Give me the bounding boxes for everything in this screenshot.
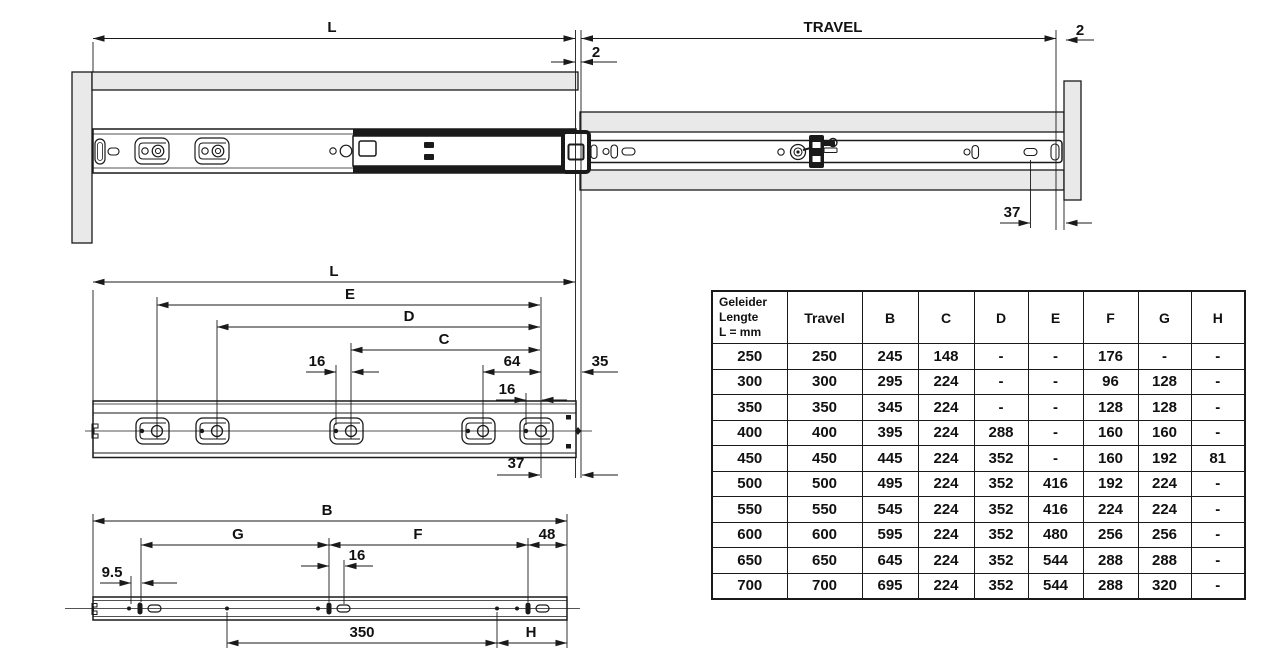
dim-label-c: C xyxy=(439,331,450,348)
table-row: 650650645224352544288288- xyxy=(712,548,1245,574)
table-cell: 400 xyxy=(712,420,787,446)
table-cell: 352 xyxy=(974,446,1028,472)
table-cell: 550 xyxy=(712,497,787,523)
table-cell: 160 xyxy=(1083,420,1138,446)
table-row: 250250245148--176-- xyxy=(712,344,1245,370)
table-cell: 450 xyxy=(712,446,787,472)
table-cell: 224 xyxy=(918,497,974,523)
table-cell: 695 xyxy=(862,573,918,599)
table-cell: 550 xyxy=(787,497,862,523)
technical-drawing-page: L TRAVEL 2 2 37 xyxy=(0,0,1280,650)
rail-connector-block xyxy=(563,132,589,172)
table-row: 700700695224352544288320- xyxy=(712,573,1245,599)
drawer-side-lower xyxy=(580,170,1064,190)
cabinet-top-panel xyxy=(92,72,578,90)
table-cell: 256 xyxy=(1083,522,1138,548)
dim-label-hole-pitch-front: 16 xyxy=(499,381,516,398)
col-header-h: H xyxy=(1191,291,1245,344)
table-cell: 96 xyxy=(1083,369,1138,395)
table-cell: 288 xyxy=(1083,573,1138,599)
dim-label-350: 350 xyxy=(349,624,374,641)
table-cell: 192 xyxy=(1083,471,1138,497)
table-cell: - xyxy=(1191,420,1245,446)
table-cell: 300 xyxy=(787,369,862,395)
table-cell: 352 xyxy=(974,548,1028,574)
drawer-side-upper xyxy=(580,112,1064,132)
table-cell: 416 xyxy=(1028,497,1083,523)
table-cell: - xyxy=(1191,369,1245,395)
table-cell: 224 xyxy=(1138,471,1191,497)
drawer-front-panel xyxy=(1064,81,1081,200)
col-header-g: G xyxy=(1138,291,1191,344)
table-cell: 176 xyxy=(1083,344,1138,370)
table-cell: 300 xyxy=(712,369,787,395)
table-cell: 480 xyxy=(1028,522,1083,548)
table-row: 600600595224352480256256- xyxy=(712,522,1245,548)
table-cell: 128 xyxy=(1138,369,1191,395)
table-cell: 700 xyxy=(712,573,787,599)
col-header-b: B xyxy=(862,291,918,344)
table-cell: - xyxy=(1138,344,1191,370)
table-cell: 224 xyxy=(1138,497,1191,523)
inner-drawer-rail xyxy=(578,135,1062,168)
table-cell: - xyxy=(1191,344,1245,370)
header-line: L = mm xyxy=(719,325,787,340)
table-cell: 352 xyxy=(974,497,1028,523)
table-cell: 160 xyxy=(1138,420,1191,446)
table-cell: - xyxy=(1028,446,1083,472)
drawer-member-view: B G F 48 16 9.5 350 H xyxy=(65,502,580,648)
table-cell: - xyxy=(1191,395,1245,421)
table-cell: - xyxy=(1028,420,1083,446)
table-cell: 600 xyxy=(787,522,862,548)
col-header-d: D xyxy=(974,291,1028,344)
table-cell: 352 xyxy=(974,522,1028,548)
table-cell: 288 xyxy=(974,420,1028,446)
table-cell: 295 xyxy=(862,369,918,395)
table-cell: 288 xyxy=(1138,548,1191,574)
dim-label-front-gap: 2 xyxy=(1076,22,1084,39)
col-header-f: F xyxy=(1083,291,1138,344)
table-cell: 650 xyxy=(712,548,787,574)
table-cell: 81 xyxy=(1191,446,1245,472)
table-cell: 645 xyxy=(862,548,918,574)
header-line: Geleider xyxy=(719,295,787,310)
table-cell: 224 xyxy=(918,369,974,395)
dim-label-h: H xyxy=(526,624,537,641)
dim-label-hole-pitch: 16 xyxy=(349,547,366,564)
header-line: Lengte xyxy=(719,310,787,325)
table-row: 450450445224352-16019281 xyxy=(712,446,1245,472)
table-cell: - xyxy=(1028,344,1083,370)
dim-label-length-top: L xyxy=(327,19,336,36)
dim-label-f: F xyxy=(413,526,422,543)
table-cell: 416 xyxy=(1028,471,1083,497)
table-cell: - xyxy=(1191,471,1245,497)
table-cell: 224 xyxy=(918,522,974,548)
table-cell: 224 xyxy=(918,395,974,421)
dim-label-9-5: 9.5 xyxy=(102,564,123,581)
table-cell: 345 xyxy=(862,395,918,421)
table-cell: 544 xyxy=(1028,548,1083,574)
table-cell: 224 xyxy=(918,548,974,574)
dim-label-e: E xyxy=(345,286,355,303)
table-cell: 224 xyxy=(918,573,974,599)
table-cell: 128 xyxy=(1138,395,1191,421)
table-cell: - xyxy=(1191,522,1245,548)
table-cell: 600 xyxy=(712,522,787,548)
table-cell: 400 xyxy=(787,420,862,446)
table-cell: 544 xyxy=(1028,573,1083,599)
spec-table: Geleider Lengte L = mm Travel B C D E F … xyxy=(711,290,1246,600)
drawer-member-dimensions: B G F 48 16 9.5 350 H xyxy=(93,502,567,648)
dim-label-b: B xyxy=(322,502,333,519)
table-cell: 160 xyxy=(1083,446,1138,472)
table-row: 550550545224352416224224- xyxy=(712,497,1245,523)
table-cell: - xyxy=(974,395,1028,421)
table-cell: 224 xyxy=(918,446,974,472)
table-cell: - xyxy=(1191,548,1245,574)
table-cell: 445 xyxy=(862,446,918,472)
table-cell: 700 xyxy=(787,573,862,599)
table-cell: - xyxy=(1028,369,1083,395)
table-cell: 250 xyxy=(712,344,787,370)
table-cell: 288 xyxy=(1083,548,1138,574)
col-header-travel: Travel xyxy=(787,291,862,344)
table-cell: 245 xyxy=(862,344,918,370)
table-cell: 224 xyxy=(918,420,974,446)
table-cell: - xyxy=(1028,395,1083,421)
table-cell: 250 xyxy=(787,344,862,370)
dim-label-d: D xyxy=(404,308,415,325)
table-cell: 224 xyxy=(1083,497,1138,523)
table-cell: - xyxy=(974,344,1028,370)
dim-label-front-hole-offset: 37 xyxy=(1004,204,1021,221)
table-cell: 500 xyxy=(787,471,862,497)
table-cell: 350 xyxy=(787,395,862,421)
table-cell: 192 xyxy=(1138,446,1191,472)
table-cell: 352 xyxy=(974,573,1028,599)
table-cell: - xyxy=(1191,497,1245,523)
dim-label-35: 35 xyxy=(592,353,609,370)
table-cell: 128 xyxy=(1083,395,1138,421)
table-cell: - xyxy=(1191,573,1245,599)
table-header-row: Geleider Lengte L = mm Travel B C D E F … xyxy=(712,291,1245,344)
col-header-geleider-lengte: Geleider Lengte L = mm xyxy=(712,291,787,344)
col-header-e: E xyxy=(1028,291,1083,344)
table-cell: 650 xyxy=(787,548,862,574)
dim-label-hole-pitch-mid: 16 xyxy=(309,353,326,370)
table-row: 350350345224--128128- xyxy=(712,395,1245,421)
dim-label-37-mid: 37 xyxy=(508,455,525,472)
table-cell: 500 xyxy=(712,471,787,497)
dim-label-length-mid: L xyxy=(329,263,338,280)
intermediate-rail xyxy=(353,129,589,173)
dim-label-64: 64 xyxy=(504,353,521,370)
table-row: 400400395224288-160160- xyxy=(712,420,1245,446)
table-cell: 148 xyxy=(918,344,974,370)
cabinet-side-panel xyxy=(72,72,92,243)
table-cell: 320 xyxy=(1138,573,1191,599)
table-cell: 450 xyxy=(787,446,862,472)
dim-label-rear-gap: 2 xyxy=(592,44,600,61)
table-cell: 545 xyxy=(862,497,918,523)
spec-table-body: 250250245148--176--300300295224--96128-3… xyxy=(712,344,1245,600)
table-cell: 495 xyxy=(862,471,918,497)
table-cell: - xyxy=(974,369,1028,395)
dim-label-travel: TRAVEL xyxy=(804,19,863,36)
table-cell: 395 xyxy=(862,420,918,446)
table-cell: 256 xyxy=(1138,522,1191,548)
col-header-c: C xyxy=(918,291,974,344)
table-cell: 350 xyxy=(712,395,787,421)
dim-label-48: 48 xyxy=(539,526,556,543)
table-row: 500500495224352416192224- xyxy=(712,471,1245,497)
cabinet-member-view: L E D C 16 64 16 35 37 xyxy=(85,263,618,478)
table-cell: 224 xyxy=(918,471,974,497)
table-cell: 595 xyxy=(862,522,918,548)
dim-label-g: G xyxy=(232,526,244,543)
table-cell: 352 xyxy=(974,471,1028,497)
table-row: 300300295224--96128- xyxy=(712,369,1245,395)
